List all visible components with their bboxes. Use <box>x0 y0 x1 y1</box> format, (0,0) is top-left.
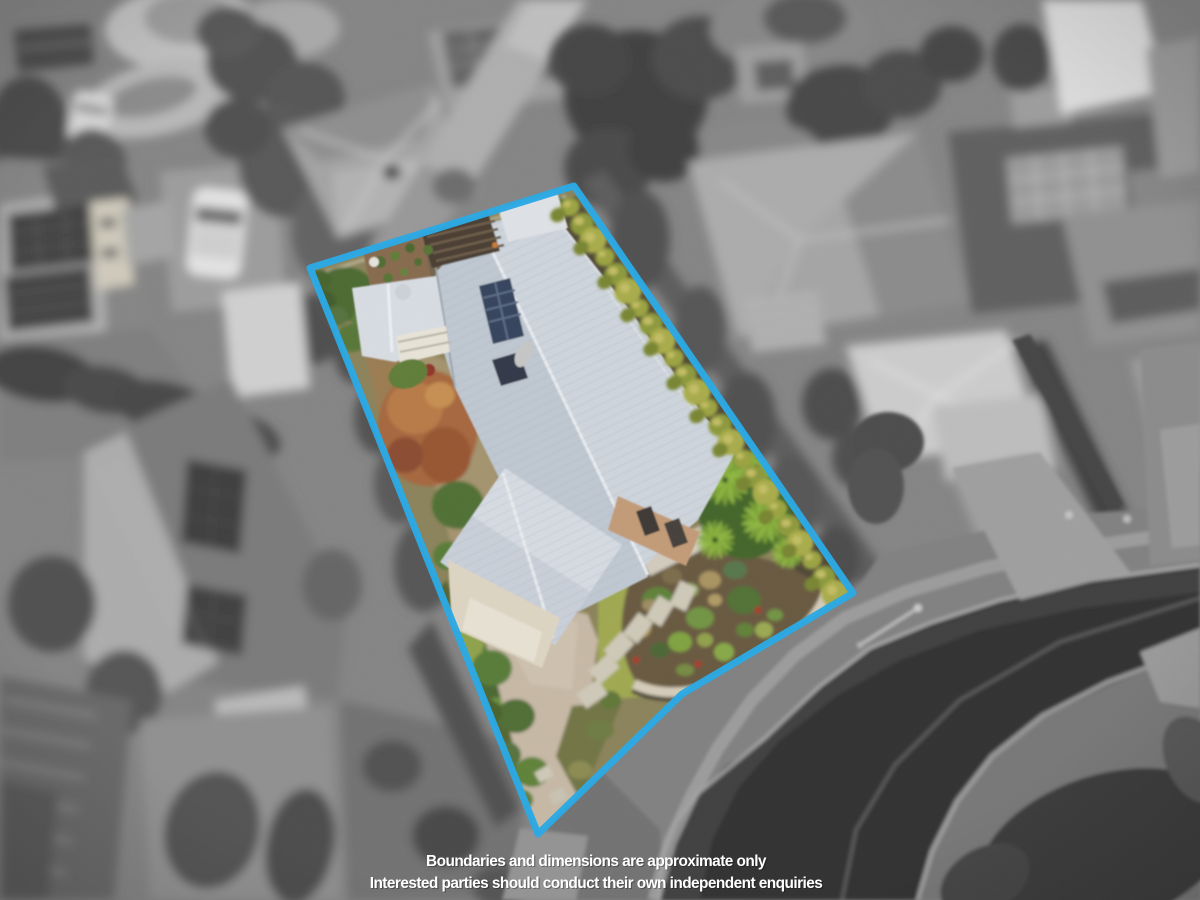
svg-text:Boundaries and dimensions are: Boundaries and dimensions are approximat… <box>426 853 767 870</box>
svg-text:Interested parties should cond: Interested parties should conduct their … <box>370 875 823 892</box>
